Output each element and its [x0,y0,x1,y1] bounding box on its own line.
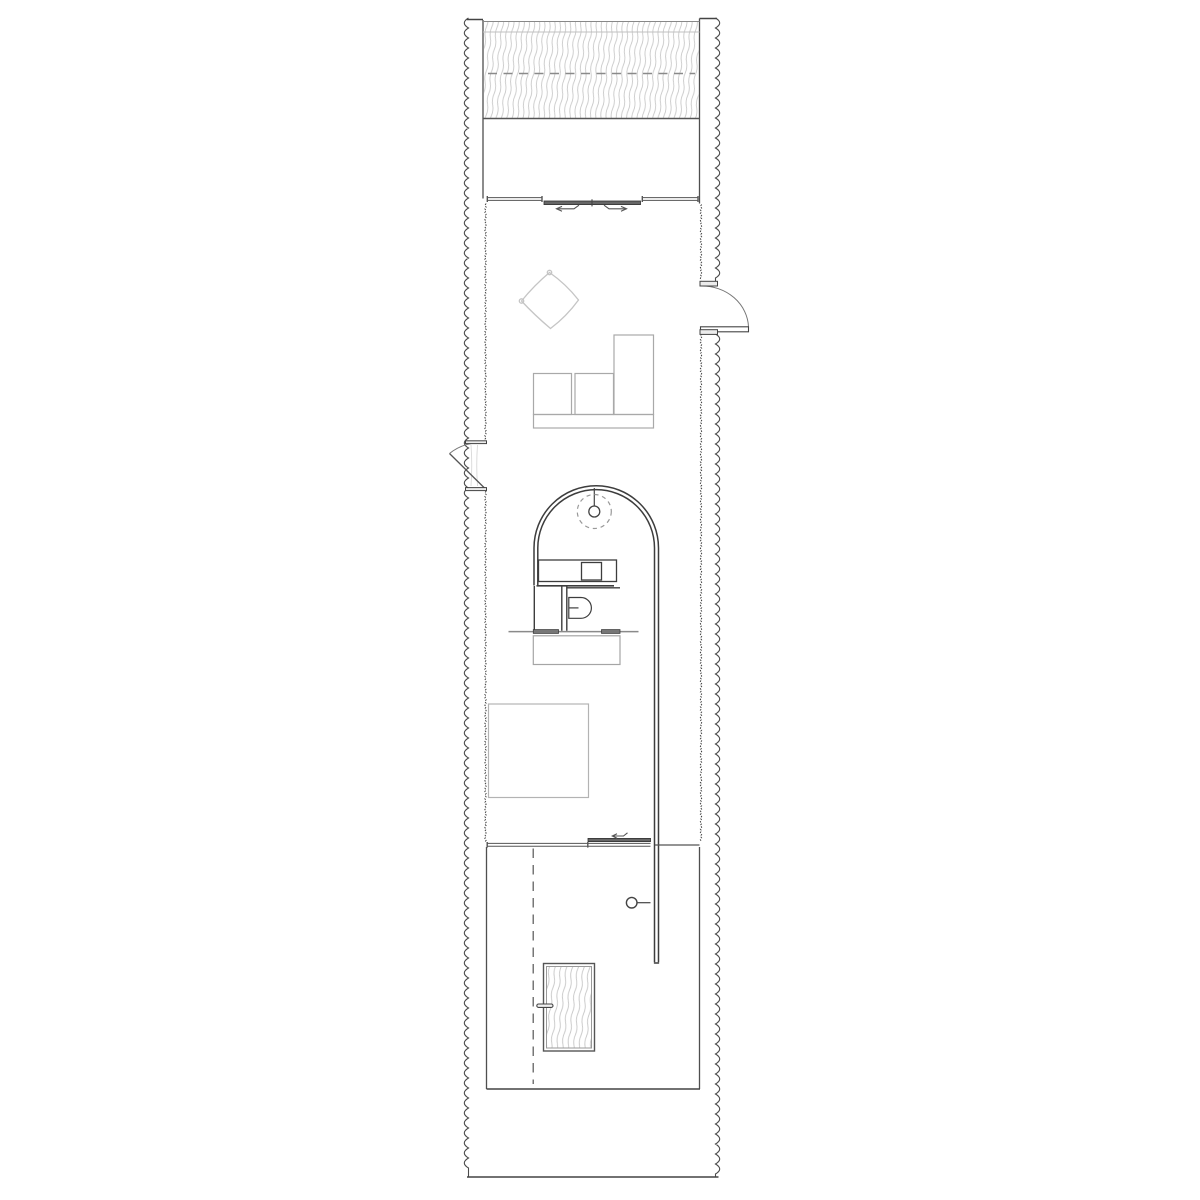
tray-right [602,630,621,634]
arch-outer-line [534,486,659,962]
counter-outline [539,560,617,582]
door-jamb-bottom [466,488,487,491]
right-exterior-wavy-wall [716,18,720,1177]
left-exterior-wavy-wall [464,18,468,1177]
top-deck-hatch-band [483,22,700,119]
top-sliding-door [487,196,699,211]
floor-plan-page [0,0,1200,1200]
sofa [534,335,654,428]
wall-caps [467,19,717,20]
solid-wall-edges [483,19,700,1090]
bathroom [534,586,620,631]
left-interior-edge [485,204,486,842]
door-jamb-top [466,441,487,444]
door-jamb-top [700,281,718,286]
top-door-sill-right [642,196,699,202]
door-swing-arc [450,443,486,454]
door-swing-arc [702,286,749,327]
kitchen-counter-with-sink [537,560,617,586]
table [533,636,620,665]
middle-door-sill [487,842,651,848]
shelf-with-trays [509,630,639,634]
tray-left [533,630,558,634]
door-handle [537,1004,553,1007]
door-frame-inner [547,967,592,1049]
wall-mounted-round-fixture [626,897,650,908]
middle-door-panel [588,838,651,841]
right-interior-edge [700,205,701,842]
sofa-seat-2 [575,374,614,415]
slide-arrow-right-icon [604,205,627,211]
floor-plan-drawing [0,0,1200,1200]
arched-partition [534,486,659,963]
lounge-diamond-chair [519,270,578,328]
sink [582,563,602,581]
bottom-hatched-door [537,964,595,1052]
sofa-seat-1 [534,374,572,415]
toilet [569,598,592,619]
sofa-chaise [614,335,654,415]
pendant-lamp [577,488,611,529]
pendant-bulb [589,506,600,517]
sofa-base [534,415,654,429]
top-door-sill-left [487,196,543,202]
right-swing-door [700,281,749,334]
slide-arrow-icon [612,833,627,838]
bed [489,704,589,798]
deck-texture [484,22,699,119]
slide-arrow-left-icon [557,205,580,211]
door-jamb-bottom [700,330,718,335]
middle-sliding-door [487,833,700,848]
